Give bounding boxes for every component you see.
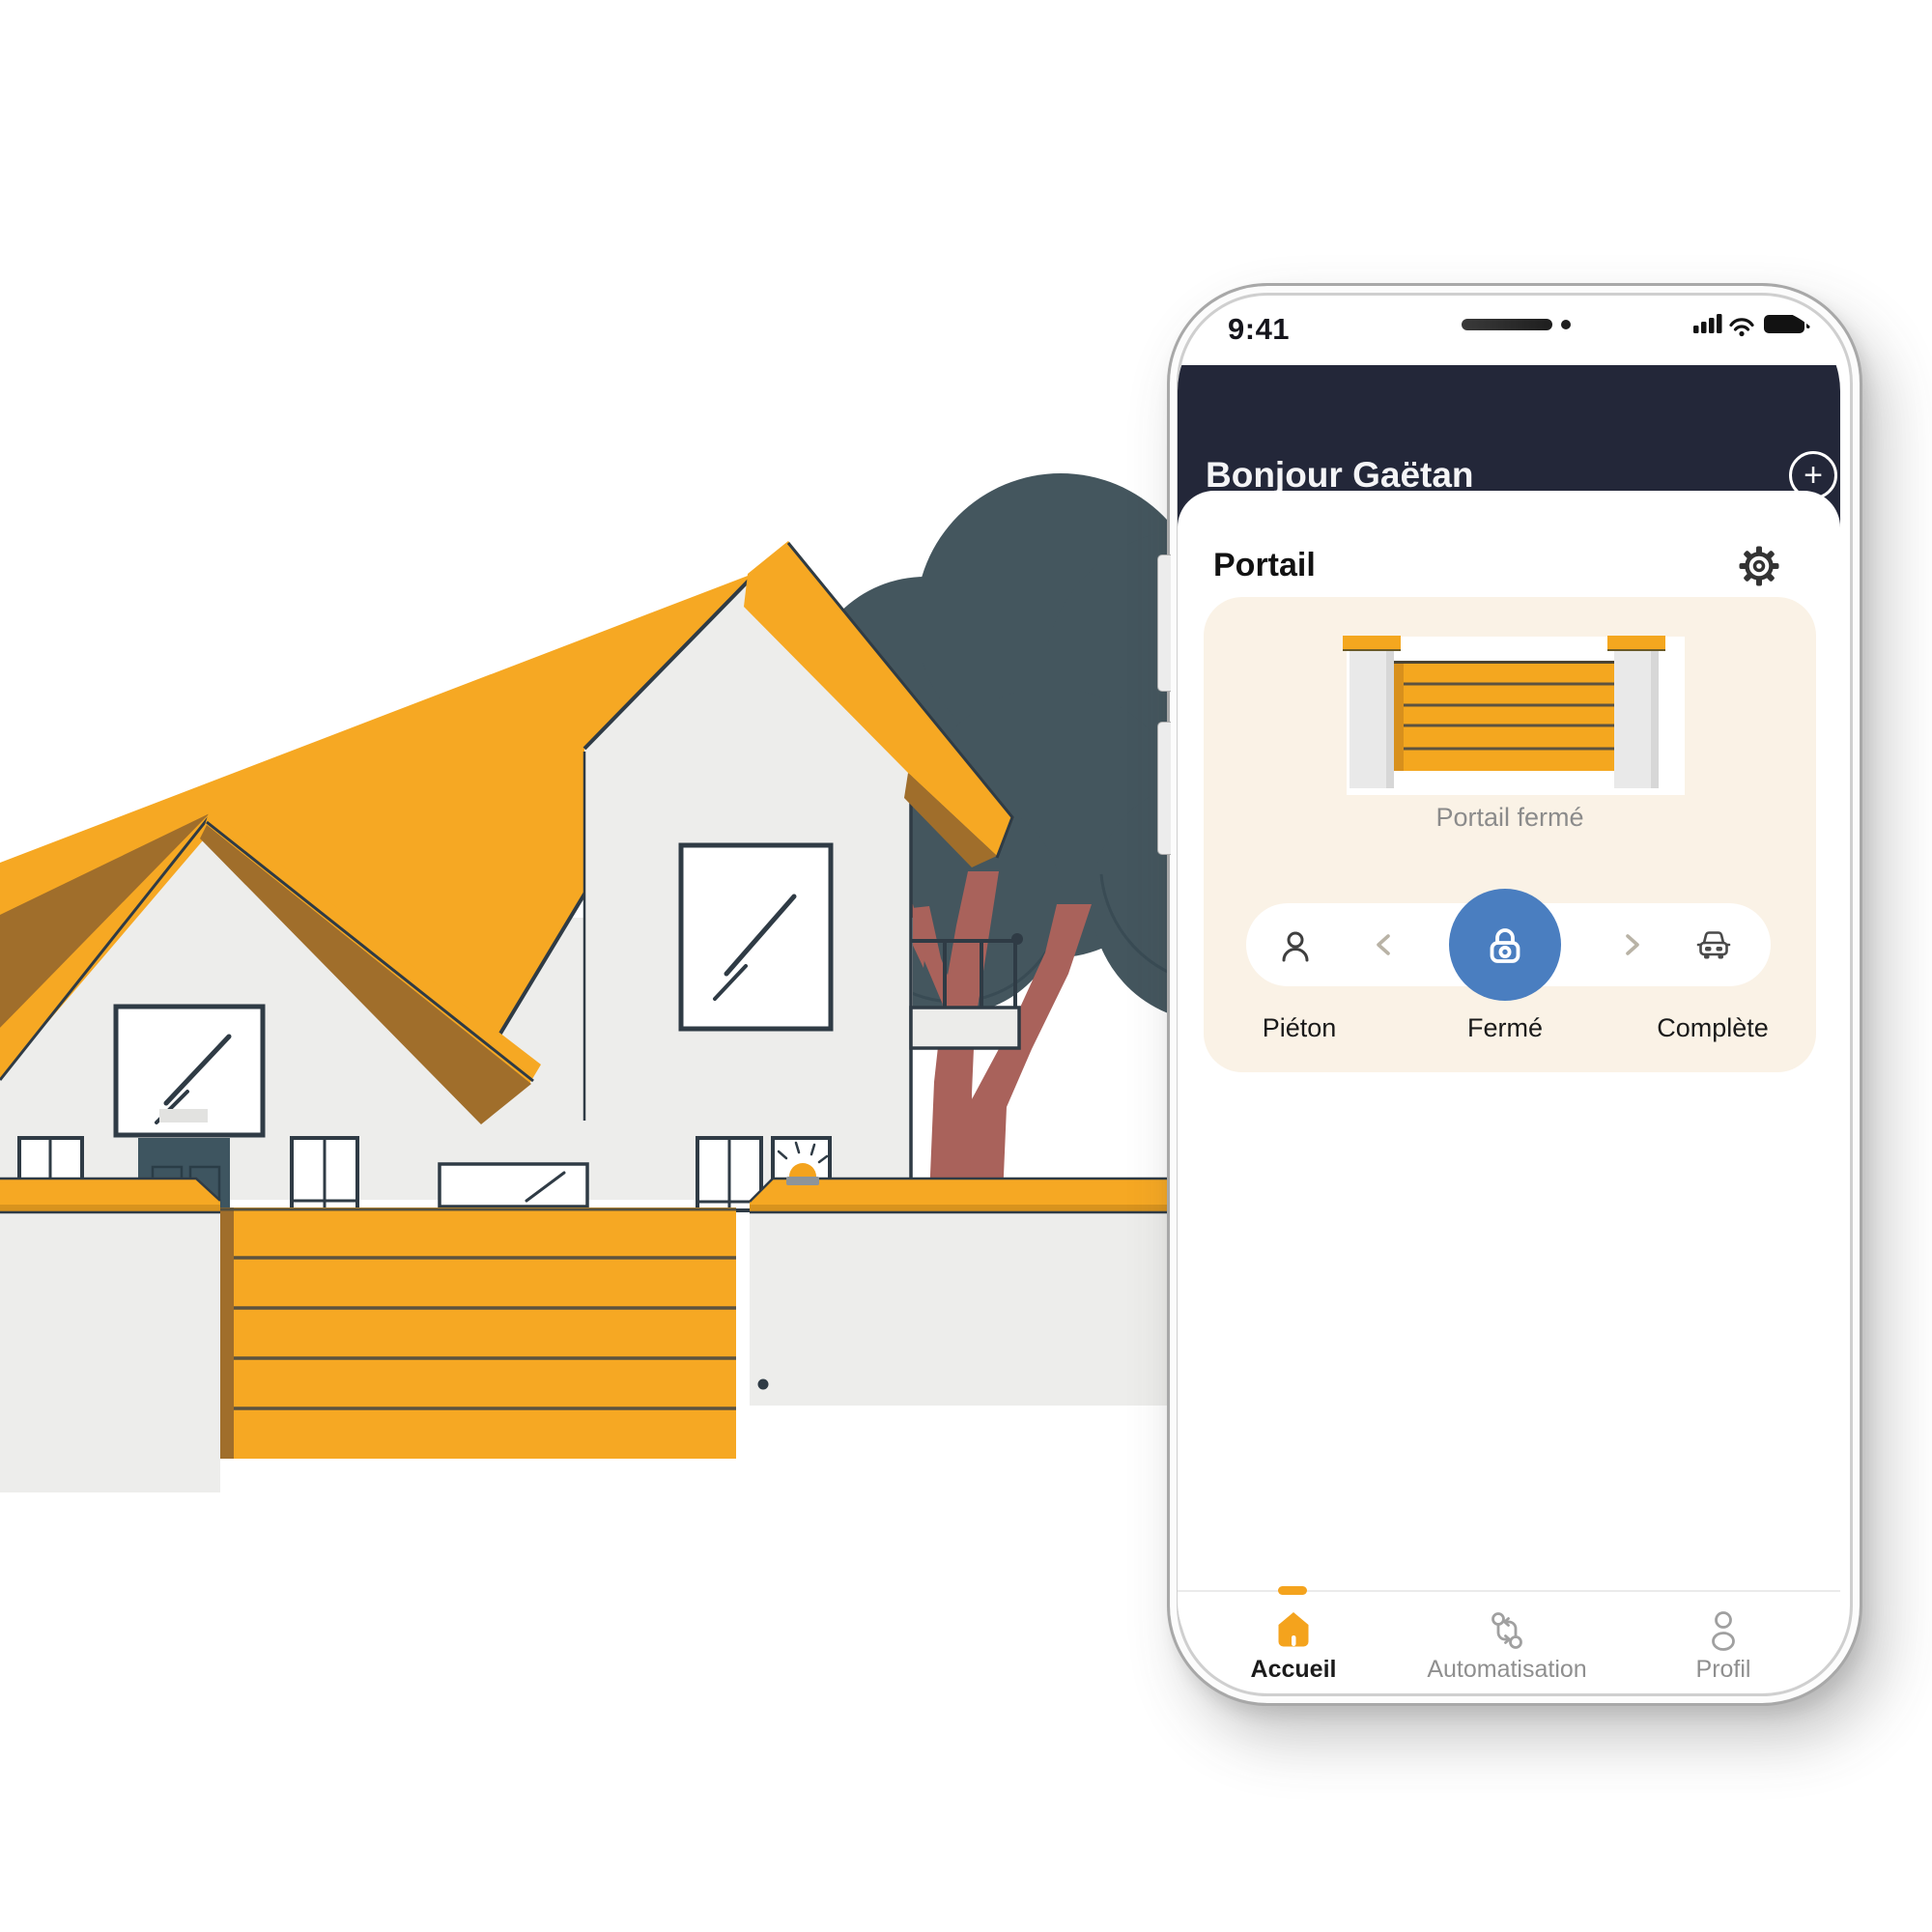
signal-bars-icon: [1693, 314, 1722, 333]
nav-separator: [1178, 1590, 1840, 1592]
wide-window: [440, 1164, 587, 1207]
volume-button[interactable]: [1157, 554, 1171, 692]
house: [0, 541, 1023, 1256]
gate-status-illustration: [1327, 628, 1708, 808]
option-label-complete: Complète: [1657, 1013, 1769, 1043]
gate-lock-button[interactable]: [1449, 889, 1561, 1001]
content-sheet: Portail: [1178, 491, 1840, 1685]
lock-icon: [1483, 923, 1527, 967]
fence-cap-left: [0, 1179, 220, 1212]
wifi-icon: [1731, 320, 1752, 336]
phone-mockup: 9:41 Bonjour Gaëtan: [1167, 283, 1862, 1706]
greeting-title: Bonjour Gaëtan: [1206, 455, 1474, 496]
gate-card: Portail fermé: [1204, 597, 1816, 1072]
option-label-pieton: Piéton: [1263, 1013, 1337, 1043]
tab-automatisation[interactable]: Automatisation: [1408, 1609, 1605, 1684]
tab-label: Automatisation: [1408, 1656, 1605, 1684]
battery-icon: [1764, 315, 1810, 333]
gate-status-caption: Portail fermé: [1204, 803, 1816, 833]
home-icon: [1273, 1609, 1314, 1652]
active-tab-indicator: [1278, 1586, 1307, 1595]
gable-window: [681, 845, 831, 1029]
chevron-right-icon[interactable]: [1617, 930, 1646, 959]
tab-label: Accueil: [1216, 1656, 1371, 1684]
option-label-ferme: Fermé: [1467, 1013, 1543, 1043]
automation-icon: [1486, 1609, 1528, 1652]
fence-wall-left: [0, 1200, 220, 1492]
window: [292, 1138, 357, 1210]
gear-icon: [1738, 545, 1780, 587]
plus-icon: +: [1804, 459, 1823, 492]
tab-accueil[interactable]: Accueil: [1216, 1609, 1371, 1684]
fence-wall-right: [750, 1200, 1169, 1406]
gate-lock-dot: [758, 1379, 769, 1390]
pedestrian-icon[interactable]: [1278, 929, 1313, 964]
tab-profil[interactable]: Profil: [1646, 1609, 1801, 1684]
car-icon[interactable]: [1694, 927, 1733, 966]
page: 9:41 Bonjour Gaëtan: [0, 0, 1932, 1932]
status-time: 9:41: [1228, 312, 1290, 347]
driveway-gate: [220, 1207, 736, 1459]
status-icons: [1688, 311, 1827, 340]
speaker-notch: [1462, 319, 1552, 330]
settings-button[interactable]: [1730, 537, 1788, 595]
chevron-left-icon[interactable]: [1370, 930, 1399, 959]
camera-dot: [1561, 320, 1571, 329]
gate-panel: [1394, 661, 1618, 771]
fence: [0, 1163, 1169, 1492]
section-title: Portail: [1213, 547, 1316, 584]
profile-icon: [1704, 1609, 1743, 1652]
volume-button[interactable]: [1157, 722, 1171, 855]
tab-label: Profil: [1646, 1656, 1801, 1684]
phone-screen: 9:41 Bonjour Gaëtan: [1178, 306, 1840, 1685]
